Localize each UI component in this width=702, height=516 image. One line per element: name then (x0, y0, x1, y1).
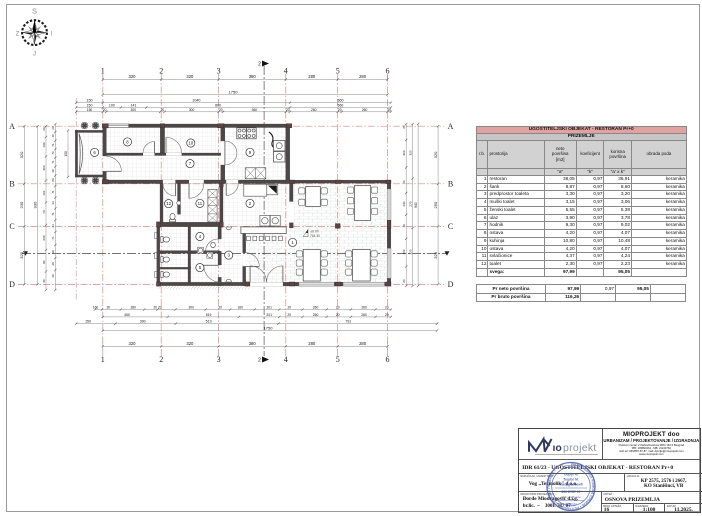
svg-text:5: 5 (336, 355, 340, 364)
svg-text:3: 3 (217, 355, 221, 364)
svg-text:380: 380 (249, 74, 257, 79)
svg-text:B: B (448, 179, 453, 188)
svg-text:Ђорђе М.: Ђорђе М. (563, 478, 579, 482)
svg-text:320: 320 (186, 74, 194, 79)
svg-text:30: 30 (51, 274, 55, 278)
svg-text:150: 150 (87, 108, 93, 112)
svg-text:1750: 1750 (229, 89, 239, 94)
svg-text:160: 160 (237, 306, 243, 310)
svg-text:12: 12 (166, 201, 171, 206)
svg-text:24: 24 (51, 224, 55, 228)
svg-text:940: 940 (414, 202, 418, 208)
svg-text:320: 320 (129, 341, 137, 346)
svg-text:11: 11 (198, 201, 203, 206)
svg-text:30: 30 (42, 279, 46, 283)
svg-text:C: C (448, 222, 453, 231)
svg-text:450: 450 (124, 313, 130, 317)
svg-text:projekt: projekt (563, 441, 597, 453)
svg-text:160: 160 (93, 306, 99, 310)
svg-text:320: 320 (129, 74, 137, 79)
svg-text:79: 79 (51, 151, 55, 155)
svg-text:C: C (9, 222, 14, 231)
svg-text:320: 320 (408, 150, 412, 155)
svg-text:150: 150 (64, 151, 68, 157)
svg-text:D: D (448, 280, 454, 289)
svg-text:дипл.грађ.инж.: дипл.грађ.инж. (561, 495, 582, 499)
svg-text:1040: 1040 (192, 99, 200, 103)
svg-text:320: 320 (433, 151, 438, 158)
svg-text:320: 320 (186, 341, 194, 346)
svg-text:100: 100 (109, 104, 115, 108)
svg-text:20: 20 (287, 306, 291, 310)
svg-text:250: 250 (433, 201, 438, 208)
svg-text:20: 20 (107, 306, 111, 310)
svg-text:6: 6 (386, 67, 390, 76)
svg-text:190: 190 (42, 142, 46, 147)
svg-text:270: 270 (408, 201, 412, 206)
svg-text:320: 320 (19, 151, 24, 158)
svg-text:280: 280 (308, 74, 316, 79)
svg-text:201: 201 (266, 313, 272, 317)
svg-text:20: 20 (153, 306, 157, 310)
svg-text:930: 930 (32, 201, 37, 208)
svg-text:20: 20 (51, 262, 55, 266)
svg-text:71: 71 (51, 190, 55, 194)
svg-text:300: 300 (140, 320, 146, 324)
svg-text:S: S (32, 7, 37, 16)
svg-text:20: 20 (385, 306, 389, 310)
svg-text:260: 260 (313, 313, 319, 317)
svg-text:20: 20 (336, 313, 340, 317)
svg-text:260: 260 (311, 108, 317, 112)
svg-text:1: 1 (101, 355, 105, 364)
svg-text:20: 20 (42, 127, 46, 131)
svg-text:320: 320 (19, 251, 24, 258)
svg-text:Миодраговић: Миодраговић (559, 483, 583, 487)
svg-text:560: 560 (337, 99, 343, 103)
svg-text:519: 519 (206, 313, 212, 317)
svg-text:20: 20 (161, 108, 165, 112)
svg-text:20: 20 (402, 125, 406, 129)
svg-text:38: 38 (51, 169, 55, 173)
svg-text:101: 101 (42, 190, 46, 195)
svg-text:20: 20 (218, 306, 222, 310)
svg-text:20: 20 (103, 108, 107, 112)
svg-text:2: 2 (159, 355, 163, 364)
svg-text:1750: 1750 (264, 325, 274, 330)
svg-text:201: 201 (266, 306, 272, 310)
svg-text:Z: Z (16, 31, 20, 37)
svg-text:71: 71 (51, 143, 55, 147)
svg-text:ıo: ıo (552, 441, 561, 453)
svg-text:Ђорђе М.: Ђорђе М. (564, 473, 579, 477)
svg-text:230: 230 (19, 201, 24, 208)
svg-text:20: 20 (387, 108, 391, 112)
svg-text:230: 230 (402, 201, 406, 206)
svg-text:764.30: 764.30 (310, 234, 320, 238)
svg-text:230: 230 (42, 235, 46, 240)
svg-text:2: 2 (258, 62, 261, 68)
svg-text:20: 20 (402, 224, 406, 228)
svg-text:4: 4 (284, 67, 288, 76)
svg-text:20: 20 (286, 108, 290, 112)
svg-text:71: 71 (51, 236, 55, 240)
svg-text:A: A (9, 122, 15, 131)
svg-text:300: 300 (402, 150, 406, 155)
svg-text:6: 6 (386, 355, 390, 364)
svg-text:71: 71 (51, 212, 55, 216)
svg-text:J: J (33, 52, 36, 58)
svg-text:3: 3 (217, 67, 221, 76)
svg-text:150: 150 (85, 320, 91, 324)
svg-text:260: 260 (313, 306, 319, 310)
svg-text:280: 280 (359, 341, 367, 346)
svg-text:20: 20 (287, 313, 291, 317)
svg-text:90: 90 (51, 250, 55, 254)
svg-text:300: 300 (402, 249, 406, 254)
svg-text:260: 260 (361, 306, 367, 310)
svg-text:20: 20 (219, 108, 223, 112)
svg-text:300: 300 (189, 108, 195, 112)
svg-text:320: 320 (408, 249, 412, 254)
svg-text:300: 300 (42, 165, 46, 170)
svg-text:34: 34 (51, 201, 55, 205)
svg-text:20: 20 (402, 279, 406, 283)
svg-text:20: 20 (338, 108, 342, 112)
svg-text:10: 10 (188, 141, 193, 146)
svg-text:519: 519 (206, 320, 212, 324)
svg-text:280: 280 (308, 341, 316, 346)
svg-text:71: 71 (51, 160, 55, 164)
svg-text:5: 5 (336, 67, 340, 76)
svg-text:260: 260 (361, 313, 367, 317)
svg-text:320: 320 (433, 251, 438, 258)
svg-text:260: 260 (362, 108, 368, 112)
svg-text:79: 79 (42, 210, 46, 214)
svg-text:A: A (448, 122, 454, 131)
svg-text:D: D (9, 280, 15, 289)
svg-text:300 E787 07: 300 E787 07 (561, 490, 580, 494)
svg-text:2: 2 (258, 358, 261, 364)
svg-text:B: B (9, 179, 14, 188)
svg-text:20: 20 (385, 313, 389, 317)
svg-text:280: 280 (359, 74, 367, 79)
svg-text:4: 4 (284, 355, 288, 364)
svg-text:2: 2 (159, 67, 163, 76)
svg-text:280: 280 (130, 306, 136, 310)
svg-text:791: 791 (345, 320, 351, 324)
svg-text:300: 300 (131, 108, 137, 112)
svg-text:20: 20 (336, 306, 340, 310)
svg-text:20: 20 (51, 126, 55, 130)
svg-text:300: 300 (188, 306, 194, 310)
svg-text:I: I (51, 31, 53, 37)
svg-text:49: 49 (51, 134, 55, 138)
svg-text:СРБИЈА: СРБИЈА (565, 502, 577, 506)
svg-text:20: 20 (402, 180, 406, 184)
svg-text:360: 360 (252, 108, 258, 112)
svg-text:150: 150 (86, 99, 92, 103)
svg-text:80: 80 (42, 260, 46, 264)
svg-text:20: 20 (158, 306, 162, 310)
svg-text:80: 80 (51, 178, 55, 182)
svg-text:380: 380 (249, 341, 257, 346)
svg-text:1: 1 (101, 67, 105, 76)
